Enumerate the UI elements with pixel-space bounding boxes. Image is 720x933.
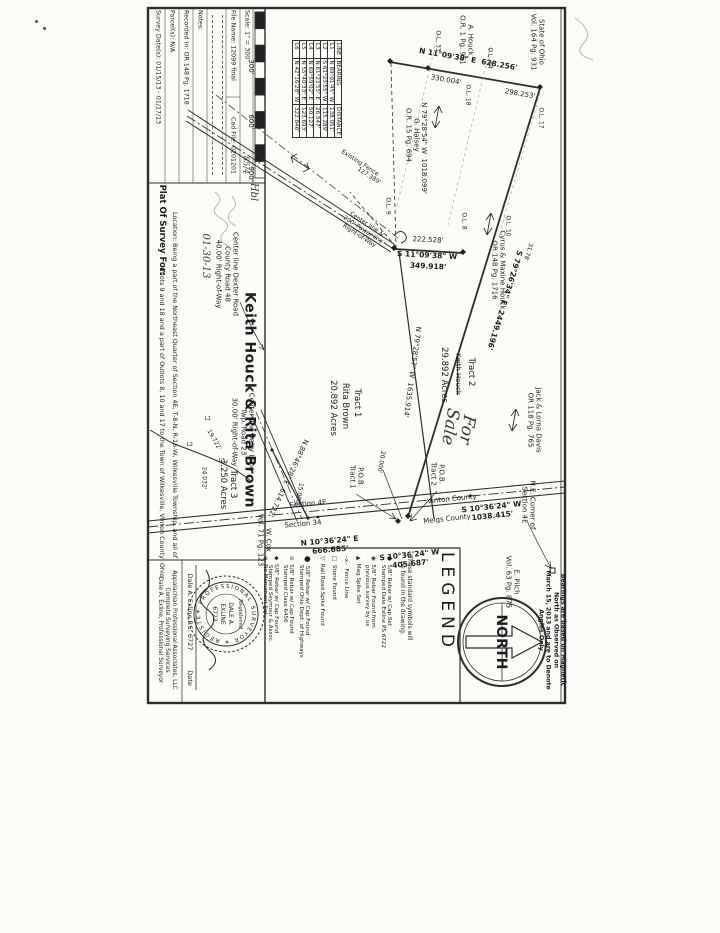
seal-name-2: EXLINE	[219, 603, 226, 625]
notes-rule	[212, 15, 213, 175]
leader-ne-corner	[528, 523, 551, 568]
location-line-1: Location: Being a part of the Northeast …	[170, 195, 178, 575]
plat-label: W. Cox Vol. 71 Pg. 123	[256, 514, 273, 567]
plat-label: Keith Houck	[454, 353, 462, 395]
legend-item: ▽ Rail Road Spike Found	[319, 556, 325, 626]
pencil-scribble-margin	[575, 18, 593, 60]
line-table-cell: 26.547'	[314, 105, 321, 138]
legend-item: □ Stone Found	[331, 556, 337, 600]
line-table-cell: L2	[321, 41, 328, 59]
legend-item: ▲ Mag Spike Set	[355, 556, 361, 604]
plat-label: Center line Dexter Road County Road 48 4…	[215, 232, 240, 316]
plat-label: 20.892 Acres	[328, 380, 338, 436]
line-table-cell: L1	[328, 41, 335, 59]
plat-label: Cyrus & Maxine Houck OR 148 Pg. 1716	[490, 230, 507, 309]
plat-label: State of Ohio Vol. 164 Pg. 931	[529, 14, 546, 71]
title-row-recorded: Recorded In: OR 148 Pg. 1718	[183, 10, 190, 180]
plat-label: L3	[219, 459, 225, 465]
plat-label: O.L. 8	[460, 212, 467, 229]
plat-label: O.L. 17	[537, 107, 544, 128]
scale-handwritten: 85/4	[242, 156, 251, 174]
plat-label: Tract 1	[352, 389, 362, 418]
plat-label: Center line Dairy Lane Twp. Road 23 30.0…	[231, 393, 256, 471]
line-table-wrap: LINEBEARINGDISTANCEL1N 89°01'45" W138.05…	[292, 40, 342, 138]
plat-label: Hbl	[247, 183, 259, 201]
title-row-survey-dates: Survey Date(s): 01/15/13 - 01/17/13	[155, 10, 162, 180]
line-table-cell: 138.051'	[328, 105, 335, 138]
plat-label: For Sale	[438, 407, 478, 450]
line-table-cell: N 55°40'33" E	[300, 58, 307, 105]
plat-label: O.L. 9	[384, 197, 391, 214]
line-table-cell: N 61°23'55" E	[314, 58, 321, 105]
scanned-plat-page: 300' 600' 900' NORTH ✶ PROFESSIONAL SURV…	[0, 0, 720, 933]
title-row-scale: Scale: 1" = 300' 85/4	[228, 10, 265, 180]
title-row-parcels: Parcel(s): N/A	[169, 10, 176, 180]
north-label: NORTH	[493, 614, 509, 669]
legend-item: ◉ 5/8" Rebar Found from previous survey …	[363, 556, 376, 628]
bearings-note: Bearings are based on Magnetic North as …	[537, 570, 566, 689]
line-table-cell: L4	[307, 41, 314, 59]
signature-name: Dale A. Exline P.S. 6727	[185, 574, 193, 651]
plat-label: 349.918'	[410, 262, 447, 273]
plat-label: 222.528'	[412, 235, 443, 245]
line-table: LINEBEARINGDISTANCEL1N 89°01'45" W138.05…	[292, 40, 342, 138]
north-arrow: NORTH	[458, 598, 546, 686]
company-block: Appalachian Professional Associates, LLC…	[155, 570, 177, 689]
location-line-2: Outlots 9 and 18 and a part of Outlots 8…	[157, 230, 165, 610]
legend-item: ⊘ 5/8" Rebar w/ Cap Found Stamped Class …	[281, 556, 294, 634]
plat-label: Jack & Lorna Davis OR 118 Pg. 765	[526, 387, 543, 452]
line-table-cell: N 89°01'45" W	[328, 58, 335, 105]
line-table-cell: 123.693'	[300, 105, 307, 138]
plat-label: Rita Brown	[340, 383, 350, 429]
legend-title: LEGEND	[437, 552, 457, 652]
plat-label: N 79°28'54" W 1018.099'	[420, 102, 428, 194]
plat-label: L1	[205, 417, 211, 423]
plat-label: N.E. Corner of Section 4E	[520, 481, 537, 530]
line-table-cell: N 42°16'28" W	[293, 58, 300, 105]
plat-label: 24.032'	[200, 467, 207, 490]
seal-script-text: Registered	[237, 598, 243, 630]
plat-label: O.L. 33	[434, 30, 441, 51]
fence-line-west	[391, 63, 396, 247]
line-table-cell: LINE	[335, 41, 342, 59]
pencil-scribble-2	[228, 196, 236, 226]
line-table-cell: L6	[293, 41, 300, 59]
line-table-cell: N 69°59'02" E	[307, 58, 314, 105]
line-table-cell: L3	[314, 41, 321, 59]
title-row-notes: Notes:	[197, 10, 204, 180]
plat-label: P.O.B. Tract 2	[429, 462, 446, 486]
line-table-cell: 115.289'	[321, 105, 328, 138]
plat-label: O.L. 34	[486, 47, 493, 68]
line-table-cell: L5	[300, 41, 307, 59]
legend-item: ◆ 5/8" Rebar w/ Cap Found Stamped Seymou…	[266, 556, 279, 643]
plat-label: 29.892 Acres	[439, 347, 449, 403]
legend-item: –x– Fence Line	[343, 556, 349, 598]
line-table-cell: 322.846'	[293, 105, 300, 138]
plat-label: A. Houck O.R. 1 Pg. 951	[458, 15, 475, 65]
plat-label: P.O.B. Tract 1	[348, 465, 365, 489]
line-table-cell: DISTANCE	[335, 105, 342, 138]
plat-label: 01-30-13	[199, 234, 211, 279]
seal-name-1: DALE A.	[227, 602, 234, 626]
leader-20000	[383, 470, 402, 519]
legend-item: ⬤ 5/8" Rebar w/ Cap Found Stamped Ohio D…	[297, 556, 310, 658]
plat-label: G. Halsey O.R. 15 Pg. 694	[404, 108, 421, 162]
line-table-cell: 50.127'	[307, 105, 314, 138]
stray-mark	[43, 27, 46, 30]
scale-value: Scale: 1" = 300'	[242, 10, 251, 61]
plat-label: E. Pilch Vol. 63 Pg. 875	[504, 556, 521, 609]
stray-mark	[35, 20, 38, 23]
plat-label: Tract 2	[466, 358, 476, 387]
plat-label: O.L. 18	[464, 84, 471, 105]
date-label: Date	[185, 670, 193, 686]
line-table-cell: BEARING	[335, 58, 342, 105]
line-table-cell: S 61°23'55" W	[321, 58, 328, 105]
plat-label: L2	[187, 443, 193, 449]
